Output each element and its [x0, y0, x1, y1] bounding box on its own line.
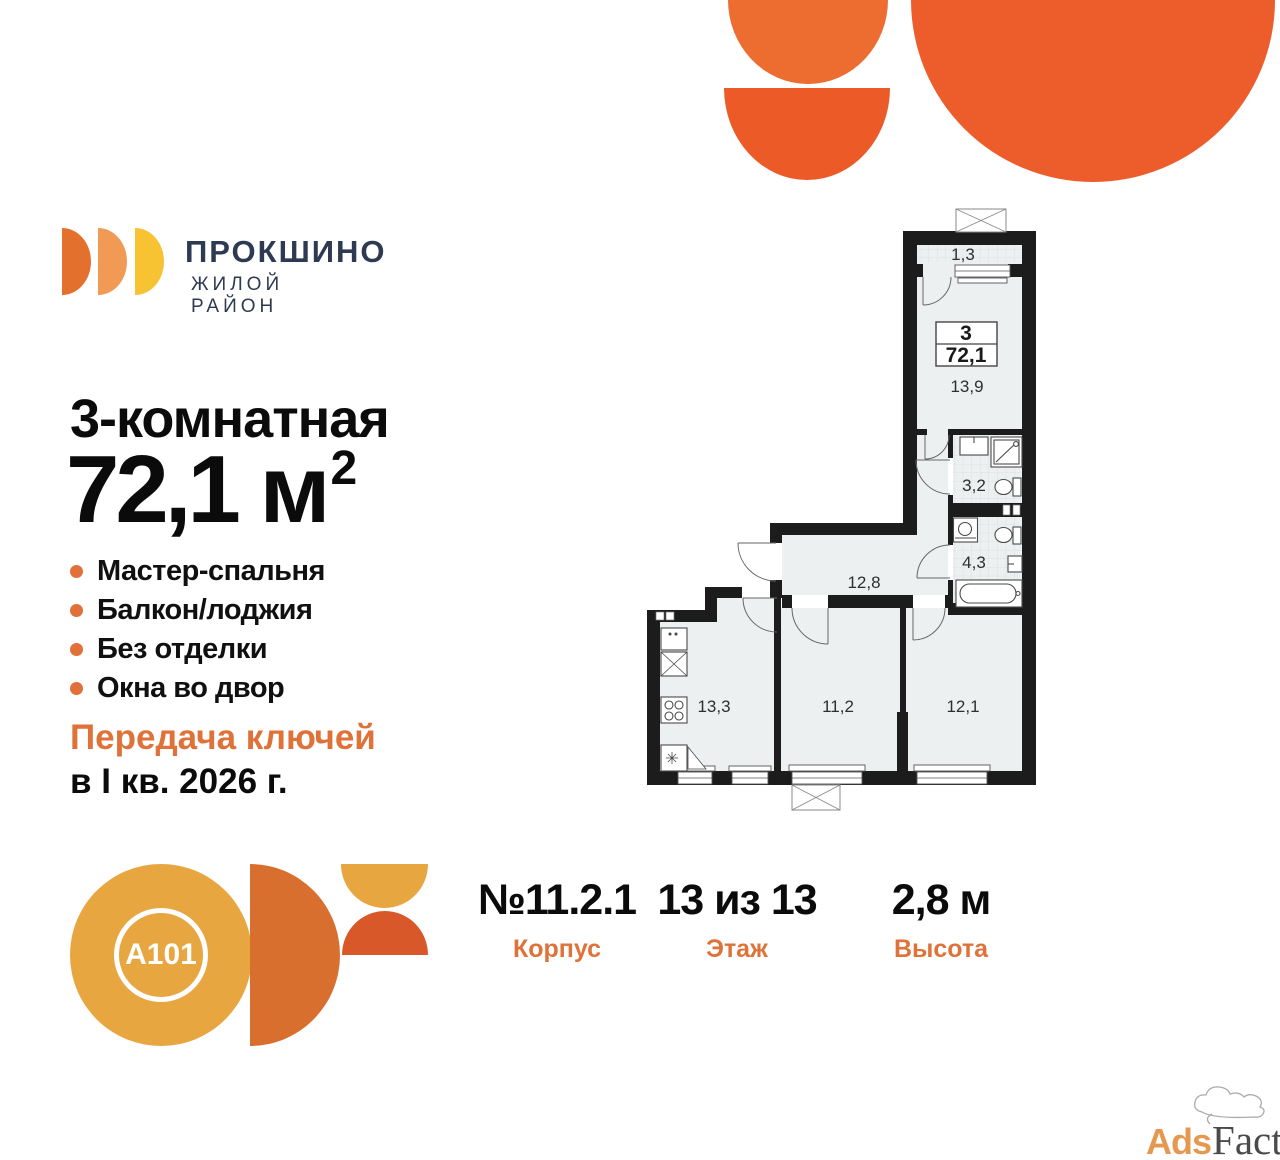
watermark-ads: Ads: [1146, 1121, 1211, 1160]
room-label-bathroom-big: 4,3: [962, 553, 986, 572]
room-label-hallway: 12,8: [847, 573, 880, 592]
toilet-icon: [1013, 478, 1021, 496]
watermark: AdsFactory: [1146, 1116, 1280, 1160]
room-label-bedroom3: 12,1: [946, 697, 979, 716]
plan-total-area: 72,1: [946, 344, 987, 367]
watermark-factory: Factory: [1212, 1116, 1280, 1160]
room-label-balcony: 1,3: [951, 245, 975, 264]
stove-icon: [661, 697, 687, 723]
floorplan: 3 72,1 1,3 13,9 3,2 4,3 12,8 13,3 11,2 1…: [0, 0, 1280, 1160]
plan-info-box: 3 72,1: [936, 322, 997, 367]
room-label-bedroom2: 11,2: [822, 697, 854, 716]
listing-card: ПРОКШИНО ЖИЛОЙ РАЙОН 3-комнатная 72,1 м2…: [0, 0, 1280, 1160]
toilet-icon: [1013, 527, 1021, 544]
plan-rooms-count: 3: [960, 322, 972, 345]
room-label-master-bedroom: 13,9: [950, 377, 983, 396]
room-label-bathroom-small: 3,2: [962, 476, 986, 495]
room-label-kitchen: 13,3: [697, 697, 730, 716]
kitchen-sink-icon: [661, 628, 687, 650]
